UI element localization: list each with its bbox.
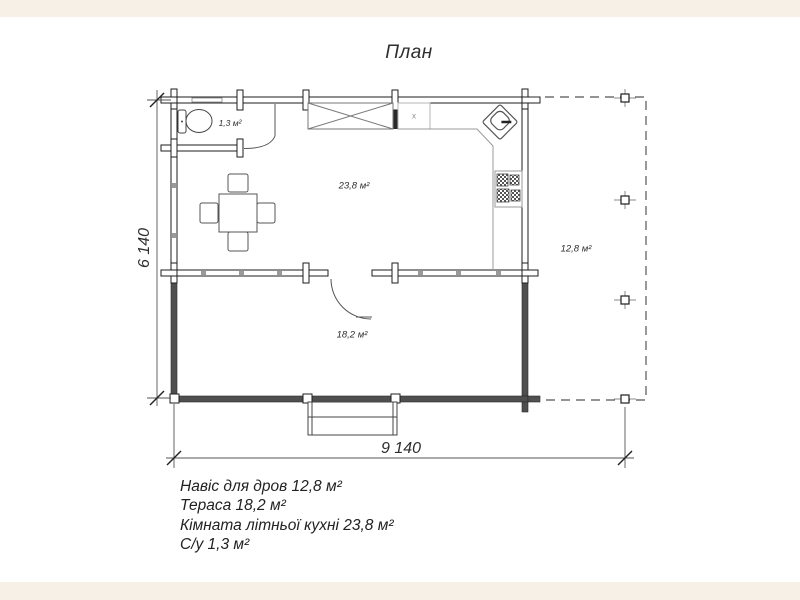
dimension-width-label: 9 140 <box>381 440 421 458</box>
room-label-kitchen-room: 23,8 м² <box>339 181 370 192</box>
dimension-height-label: 6 140 <box>136 228 154 268</box>
room-label-canopy: 12,8 м² <box>561 244 592 255</box>
legend: Навіс для дров 12,8 м² Тераса 18,2 м² Кі… <box>180 477 394 554</box>
kitchen-x-label: x <box>412 112 416 121</box>
terrace-door-arc <box>331 279 372 319</box>
dimension-horizontal <box>166 404 634 468</box>
legend-line-wc: С/у 1,3 м² <box>180 535 394 554</box>
legend-line-canopy: Навіс для дров 12,8 м² <box>180 477 394 496</box>
corner-sink-icon <box>482 104 517 139</box>
kitchen-counter-edge <box>398 129 493 270</box>
legend-line-terrace: Тераса 18,2 м² <box>180 496 394 515</box>
canopy-posts <box>614 89 636 403</box>
room-label-wc: 1,3 м² <box>219 118 242 128</box>
stove-icon <box>495 171 522 207</box>
toilet-icon <box>178 110 212 134</box>
dining-table-icon <box>200 174 275 251</box>
kitchen-crossed-unit <box>308 103 393 129</box>
floor-plan-drawing <box>0 0 800 600</box>
room-label-terrace: 18,2 м² <box>337 330 368 341</box>
toilet-door-arc <box>244 104 275 149</box>
plan-title: План <box>385 42 433 64</box>
legend-line-kitchen: Кімната літньої кухні 23,8 м² <box>180 516 394 535</box>
terrace-walls <box>171 276 540 412</box>
entrance-steps <box>308 402 397 435</box>
floor-plan-page: План 1,3 м² 23,8 м² 12,8 м² 18,2 м² x 9 … <box>0 0 800 600</box>
